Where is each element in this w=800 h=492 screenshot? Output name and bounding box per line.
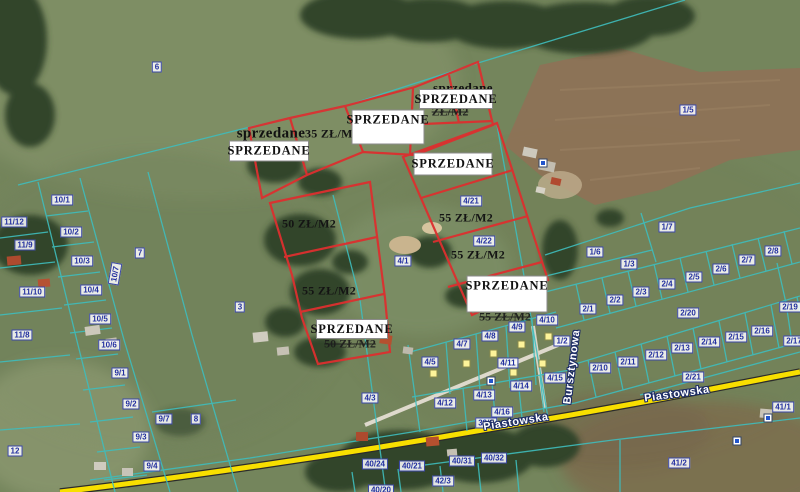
satellite-background [0, 0, 800, 492]
map-canvas[interactable]: 50 ZŁ/M255 ZŁ/M2ZŁ/M2sprzedane 61/511/12… [0, 0, 800, 492]
